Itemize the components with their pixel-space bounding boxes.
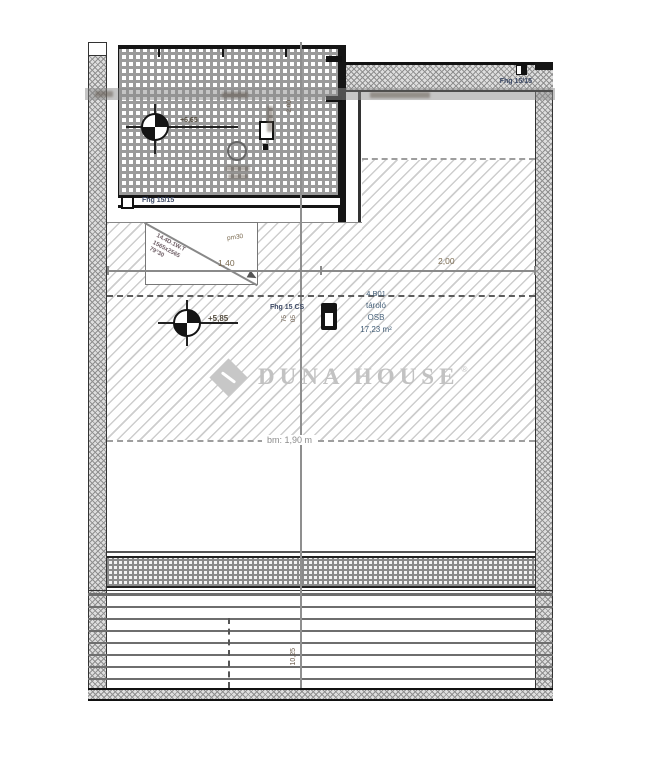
dimension-tick [534, 266, 536, 275]
bottom-vertical-dim: 10,25 [290, 648, 297, 666]
floor-plan-page: { "brand": { "watermark": "DUNA HOUSE", … [0, 0, 649, 768]
beam-icon-top-right [516, 65, 527, 75]
dimension-left: 1,40 [218, 258, 235, 268]
chimney-box [121, 196, 134, 209]
dimension-right: 2,00 [438, 256, 455, 266]
level-marker-icon [141, 113, 169, 141]
section-fold-band [85, 88, 555, 100]
left-wall-cap [88, 42, 107, 56]
faded-text-smudge [95, 91, 113, 97]
room-floor-material: OSB [330, 312, 422, 324]
watermark: DUNA HOUSE ® [215, 358, 465, 396]
window-tick [222, 49, 224, 57]
bottom-wall-band [88, 688, 553, 701]
terrace-vertical-dim: 2,00 [286, 100, 293, 113]
level-value-attic: +5,85 [208, 314, 228, 323]
right-wall-cap [535, 62, 553, 70]
dimension-tick [320, 266, 322, 275]
headroom-dashed-line-top [362, 158, 535, 160]
door-dim-a: 75 [281, 315, 288, 322]
column-circle-icon [227, 141, 247, 161]
beam-label-top-right: Fhg 15/15 [470, 78, 532, 85]
faded-text-smudge [226, 166, 250, 171]
watermark-text: DUNA HOUSE [258, 364, 459, 390]
knee-wall-band [107, 556, 535, 588]
window-tick [158, 49, 160, 57]
clear-height-label: bm: 1,90 m [262, 435, 317, 445]
room-name: tároló [330, 300, 422, 312]
door-dim-b: 05 [290, 315, 297, 322]
faded-text-smudge [222, 92, 248, 98]
window-tick [285, 49, 287, 57]
fixture-dot [263, 144, 268, 150]
faded-text-smudge [370, 92, 430, 98]
knee-wall-top-line [107, 551, 535, 553]
room-label-block: 4.B01 tároló OSB 17,23 m² [330, 288, 422, 336]
room-area: 17,23 m² [330, 324, 422, 336]
faded-text-smudge [267, 106, 273, 132]
room-code: 4.B01 [330, 288, 422, 300]
dunahouse-diamond-icon [209, 358, 247, 396]
dimension-tick [107, 266, 109, 275]
registered-mark: ® [461, 365, 467, 374]
beam-label-door: Fhg 15 CS [270, 304, 304, 311]
ridge-dashed-line [107, 295, 535, 297]
roof-plane-area [88, 590, 553, 688]
partition-line [358, 92, 361, 222]
clear-height-dashed-line [107, 440, 535, 442]
faded-text-smudge [228, 174, 248, 179]
beam-label-terrace: Fhg 15/15 [142, 197, 174, 204]
level-value-terrace: +6,65 [180, 117, 198, 124]
level-marker-icon [173, 309, 201, 337]
roof-dashed-vline [228, 618, 230, 688]
